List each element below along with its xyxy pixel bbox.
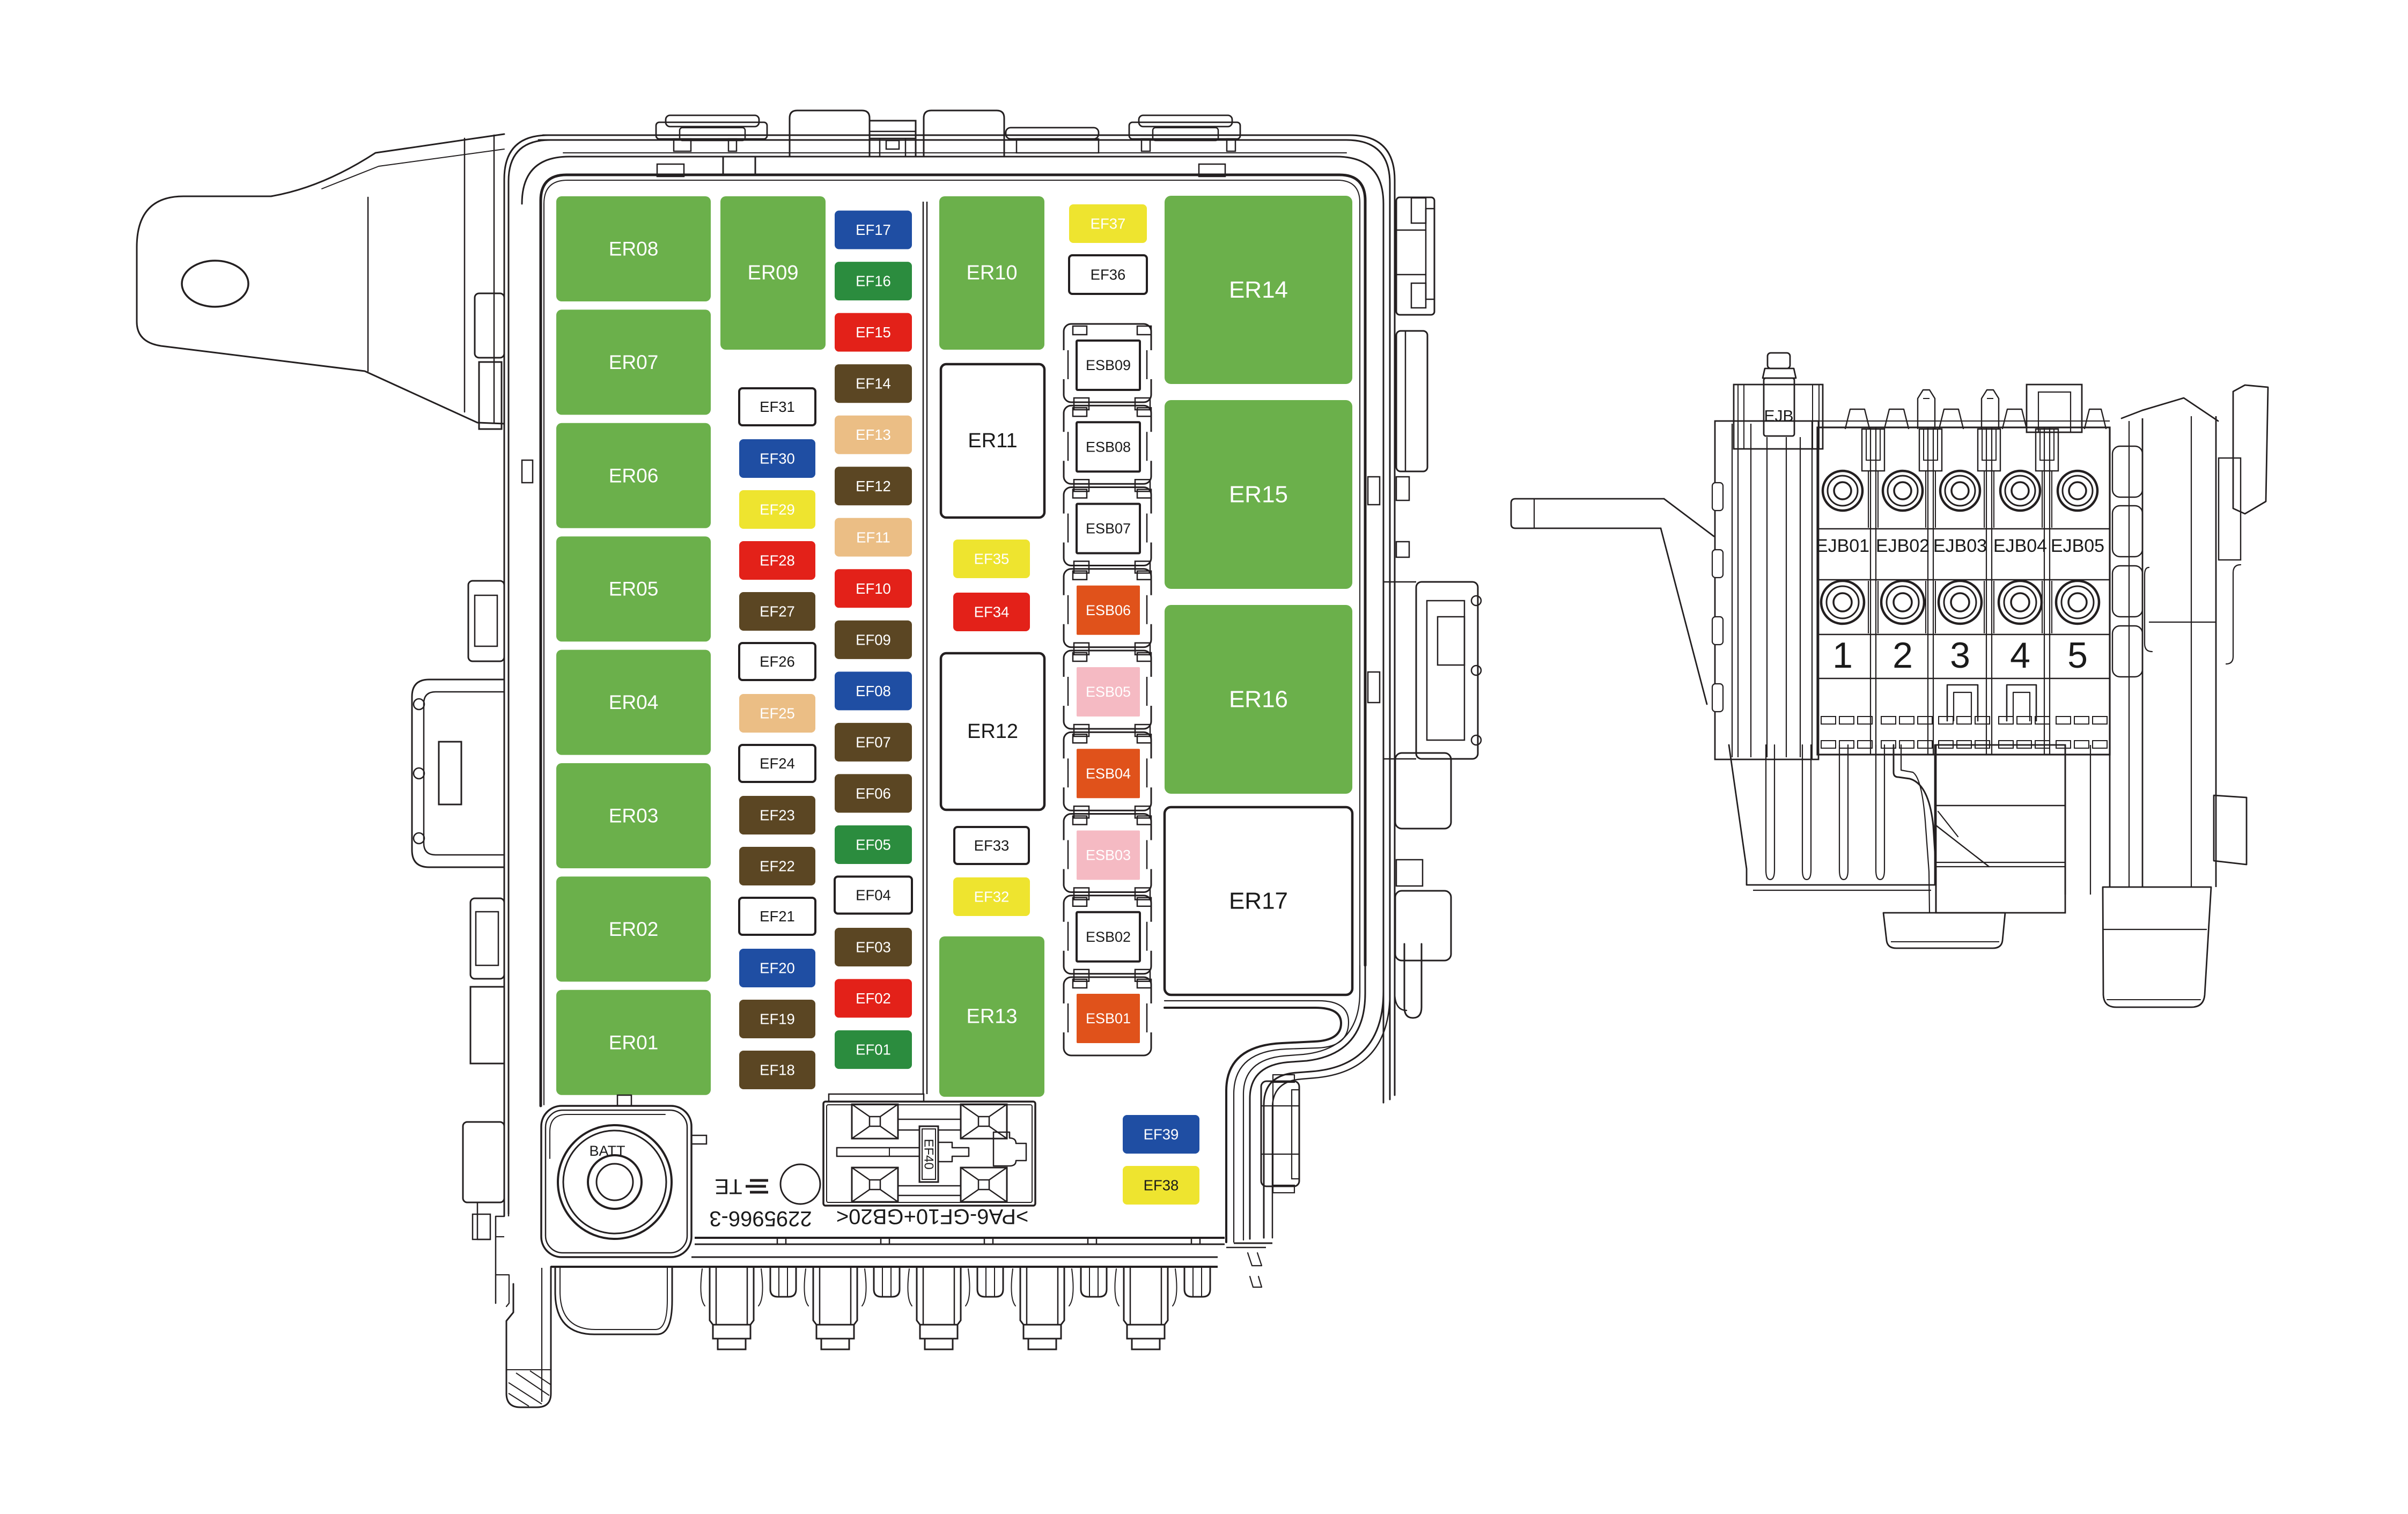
svg-text:BATT: BATT [590, 1143, 625, 1159]
svg-text:EF13: EF13 [856, 426, 891, 443]
svg-text:ESB06: ESB06 [1086, 602, 1131, 618]
svg-text:ESB07: ESB07 [1086, 521, 1131, 537]
svg-text:ER15: ER15 [1229, 482, 1288, 508]
svg-text:EF01: EF01 [856, 1042, 891, 1058]
svg-text:ER09: ER09 [747, 262, 798, 284]
svg-text:EF20: EF20 [760, 960, 795, 977]
svg-text:ESB08: ESB08 [1086, 439, 1131, 455]
svg-text:2: 2 [1892, 635, 1913, 676]
svg-text:EF10: EF10 [856, 580, 891, 597]
svg-text:EF05: EF05 [856, 836, 891, 853]
svg-text:ER07: ER07 [609, 351, 659, 373]
svg-text:EF28: EF28 [760, 552, 795, 569]
svg-text:EF26: EF26 [760, 653, 795, 670]
svg-text:ER13: ER13 [966, 1006, 1017, 1028]
svg-text:EF02: EF02 [856, 990, 891, 1007]
svg-text:TE: TE [715, 1175, 742, 1198]
svg-text:1: 1 [1832, 635, 1853, 676]
svg-text:EF03: EF03 [856, 939, 891, 956]
svg-text:>PA6-GF10+GB20<: >PA6-GF10+GB20< [836, 1205, 1028, 1228]
svg-text:EJB04: EJB04 [1993, 536, 2047, 556]
svg-text:ER17: ER17 [1229, 888, 1288, 914]
svg-text:EJB02: EJB02 [1876, 536, 1930, 556]
svg-text:ER05: ER05 [609, 578, 659, 600]
svg-text:EF38: EF38 [1144, 1177, 1179, 1194]
svg-text:ESB05: ESB05 [1086, 684, 1131, 700]
svg-text:ESB01: ESB01 [1086, 1010, 1131, 1026]
svg-text:EF34: EF34 [974, 604, 1010, 621]
svg-text:EF37: EF37 [1091, 216, 1126, 232]
svg-text:ER04: ER04 [609, 691, 659, 713]
svg-text:EF18: EF18 [760, 1062, 795, 1079]
svg-text:ER14: ER14 [1229, 277, 1288, 303]
svg-text:EF36: EF36 [1091, 267, 1126, 283]
svg-text:EF35: EF35 [974, 551, 1010, 567]
svg-text:EJB: EJB [1764, 408, 1793, 425]
svg-text:EF31: EF31 [760, 398, 795, 415]
svg-text:EF17: EF17 [856, 221, 891, 238]
svg-text:EF23: EF23 [760, 807, 795, 824]
svg-text:EJB01: EJB01 [1816, 536, 1869, 556]
svg-text:EF14: EF14 [856, 375, 891, 392]
svg-text:EF12: EF12 [856, 478, 891, 494]
svg-text:EF25: EF25 [760, 705, 795, 722]
svg-text:EF39: EF39 [1144, 1126, 1179, 1143]
svg-text:EF40: EF40 [922, 1139, 936, 1169]
svg-text:4: 4 [2010, 635, 2030, 676]
svg-text:EJB03: EJB03 [1933, 536, 1987, 556]
svg-text:EF30: EF30 [760, 450, 795, 467]
svg-text:EF19: EF19 [760, 1011, 795, 1028]
svg-text:ER03: ER03 [609, 805, 659, 827]
svg-text:EF08: EF08 [856, 683, 891, 699]
svg-text:ER10: ER10 [966, 262, 1017, 284]
svg-text:EF24: EF24 [760, 755, 795, 772]
svg-text:EF16: EF16 [856, 273, 891, 290]
svg-text:EF09: EF09 [856, 631, 891, 648]
svg-text:EF22: EF22 [760, 858, 795, 875]
svg-text:EF27: EF27 [760, 603, 795, 620]
svg-text:ER08: ER08 [609, 238, 659, 260]
svg-text:EF07: EF07 [856, 734, 891, 750]
svg-text:EF15: EF15 [856, 324, 891, 341]
svg-text:EF06: EF06 [856, 785, 891, 802]
svg-text:EF04: EF04 [856, 887, 891, 903]
svg-text:ESB09: ESB09 [1086, 357, 1131, 373]
svg-text:EF29: EF29 [760, 501, 795, 518]
svg-text:5: 5 [2067, 635, 2088, 676]
svg-text:ER02: ER02 [609, 918, 659, 940]
svg-text:ER16: ER16 [1229, 686, 1288, 713]
svg-text:EF32: EF32 [974, 889, 1010, 905]
svg-text:3: 3 [1950, 635, 1970, 676]
svg-text:EF33: EF33 [974, 837, 1010, 854]
svg-text:ER06: ER06 [609, 464, 659, 486]
svg-text:ESB04: ESB04 [1086, 765, 1131, 781]
svg-text:ER11: ER11 [968, 430, 1017, 452]
svg-text:EF11: EF11 [856, 529, 890, 545]
svg-text:ER12: ER12 [967, 720, 1018, 743]
svg-text:EF21: EF21 [760, 908, 795, 925]
svg-text:ER01: ER01 [609, 1031, 659, 1053]
svg-text:ESB02: ESB02 [1086, 929, 1131, 945]
svg-text:2295966-3: 2295966-3 [709, 1207, 812, 1230]
svg-text:EJB05: EJB05 [2051, 536, 2104, 556]
svg-text:ESB03: ESB03 [1086, 847, 1131, 863]
